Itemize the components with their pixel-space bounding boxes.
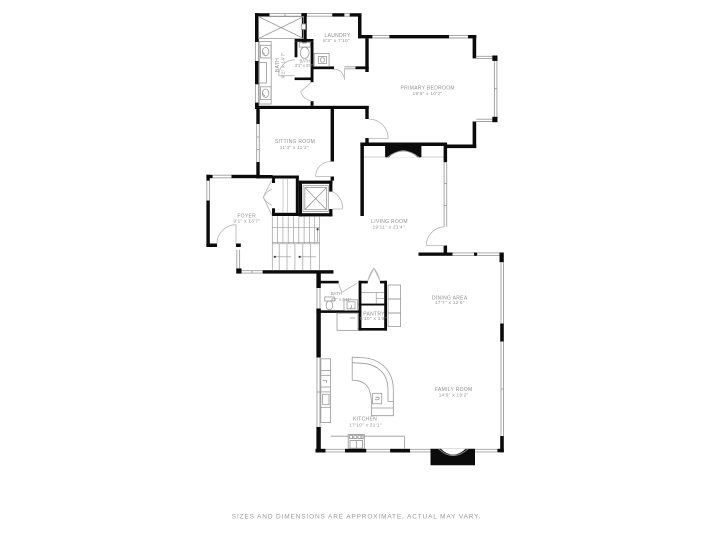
svg-text:BATH: BATH xyxy=(331,291,342,296)
svg-text:14'5" x 19'2": 14'5" x 19'2" xyxy=(439,393,469,398)
svg-text:17'10" x 21'1": 17'10" x 21'1" xyxy=(349,422,382,427)
svg-text:9'2" x 14'7": 9'2" x 14'7" xyxy=(281,52,286,79)
svg-text:5'10" x 3'9": 5'10" x 3'9" xyxy=(360,316,387,321)
svg-text:8'3" x 7'10": 8'3" x 7'10" xyxy=(323,38,350,43)
svg-text:19'8" x 10'2": 19'8" x 10'2" xyxy=(413,91,443,96)
svg-text:9'1" x 13'7": 9'1" x 13'7" xyxy=(233,219,260,224)
svg-text:4'2" x 4'11": 4'2" x 4'11" xyxy=(331,297,352,302)
svg-text:19'11" x 21'4": 19'11" x 21'4" xyxy=(373,224,405,229)
svg-text:17'7" x 12'6": 17'7" x 12'6" xyxy=(435,300,465,305)
svg-text:SIZES AND DIMENSIONS ARE APPRO: SIZES AND DIMENSIONS ARE APPROXIMATE, AC… xyxy=(232,514,481,521)
svg-text:11'3" x 11'2": 11'3" x 11'2" xyxy=(280,145,309,150)
svg-text:3'1" x 5'5": 3'1" x 5'5" xyxy=(295,63,314,68)
